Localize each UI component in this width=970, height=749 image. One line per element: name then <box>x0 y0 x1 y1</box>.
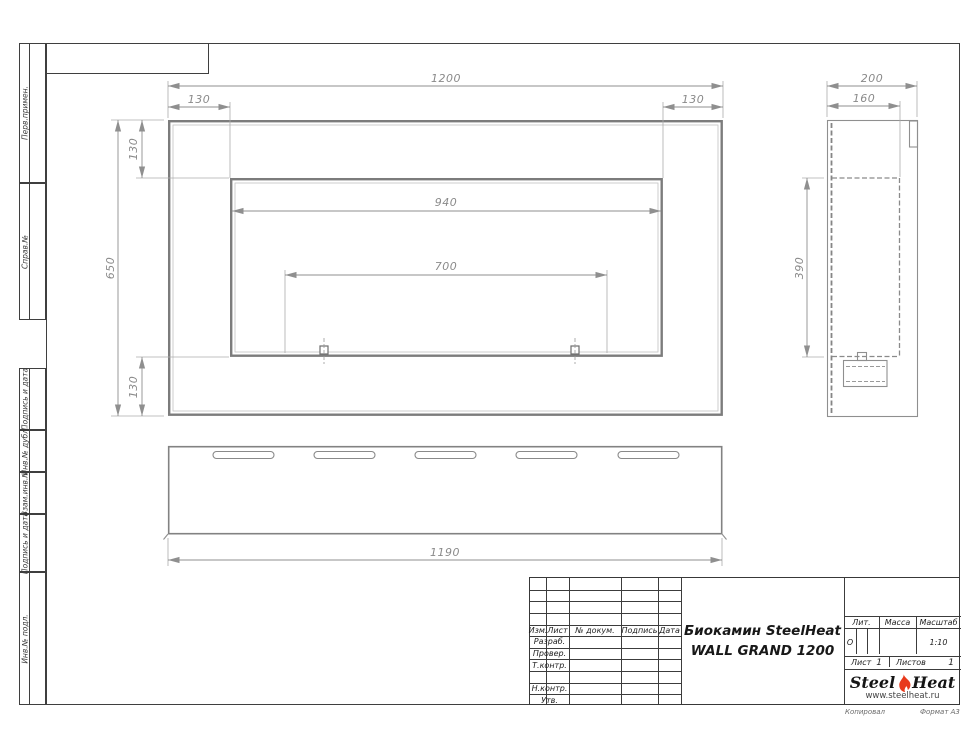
tb-sheets: Листов 1 <box>889 656 961 669</box>
logo-site: www.steelheat.ru <box>865 691 939 701</box>
tb-sheets-value: 1 <box>948 658 954 668</box>
dim-front-left-offset: 130 <box>188 93 211 106</box>
tb-line <box>658 578 659 704</box>
drawing-sheet: Перв.примен. Справ.№ Подпись и дата Инв.… <box>0 0 970 749</box>
dim-front-height: 650 <box>104 257 117 280</box>
side-view <box>828 121 918 417</box>
tb-col-doc: № докум. <box>569 625 621 637</box>
dim-front-bottom-offset: 130 <box>127 376 140 399</box>
dim-side-depth: 200 <box>861 72 884 85</box>
tb-scale-value: 1:10 <box>916 628 961 656</box>
dim-opening-width: 940 <box>435 196 458 209</box>
tb-row-razrab: Разраб. <box>530 636 569 648</box>
steelheat-logo: Steel Heat www.steelheat.ru <box>844 669 961 706</box>
tb-line <box>530 590 681 591</box>
drawing-title-line1: Биокамин SteelHeat <box>684 622 841 642</box>
tb-line <box>530 613 681 614</box>
title-block: Изм. Лист № докум. Подпись Дата Разраб. … <box>529 577 960 705</box>
tb-lit-label: Лит. <box>844 616 879 628</box>
tb-row-tkontr: Т.контр. <box>530 659 569 671</box>
dim-front-top-offset: 130 <box>127 138 140 161</box>
tb-row-prover: Провер. <box>530 648 569 660</box>
tb-sheets-label: Листов <box>896 658 926 667</box>
tb-row-utv: Утв. <box>530 694 569 706</box>
tb-scale-label: Масштаб <box>916 616 961 628</box>
drawing-title: Биокамин SteelHeat WALL GRAND 1200 <box>681 578 844 706</box>
front-dimensions: 1200 130 130 650 130 130 940 700 <box>104 72 723 416</box>
vent-slot <box>618 452 679 459</box>
logo-heat: Heat <box>912 675 955 691</box>
tb-lit-value: О <box>844 628 856 656</box>
tb-col-list: Лист <box>546 625 569 637</box>
bottom-view <box>164 447 727 540</box>
dim-side-opening-height: 390 <box>793 257 806 280</box>
tb-sheet-value: 1 <box>876 658 882 668</box>
dim-side-inner-depth: 160 <box>853 92 876 105</box>
tb-row-nkontr: Н.контр. <box>530 683 569 695</box>
copied-label: Копировал <box>845 708 885 716</box>
dim-bottom-length: 1190 <box>430 546 460 559</box>
tb-sheet: Лист 1 <box>844 656 889 669</box>
side-dimensions: 200 160 390 <box>793 72 917 357</box>
bottom-dimensions: 1190 <box>168 538 722 566</box>
tb-line <box>530 601 681 602</box>
tb-sheet-label: Лист <box>851 658 871 667</box>
dim-mount-width: 700 <box>435 260 458 273</box>
dim-front-right-offset: 130 <box>682 93 705 106</box>
tb-col-sign: Подпись <box>621 625 658 637</box>
tb-line <box>569 578 570 704</box>
drawing-title-line2: WALL GRAND 1200 <box>691 642 834 662</box>
vent-slot <box>314 452 375 459</box>
tb-line <box>856 628 857 654</box>
tb-mass-label: Масса <box>879 616 916 628</box>
vent-slot <box>415 452 476 459</box>
logo-steel: Steel <box>850 675 895 691</box>
tb-line <box>621 578 622 704</box>
burner-box <box>844 361 888 387</box>
tb-col-date: Дата <box>658 625 681 637</box>
tb-line <box>867 628 868 654</box>
tb-col-izm: Изм. <box>530 625 546 637</box>
tb-line <box>530 671 681 672</box>
vent-slot <box>213 452 274 459</box>
wall-bracket <box>910 121 918 147</box>
logo-text: Steel Heat <box>850 674 955 691</box>
dim-front-width: 1200 <box>431 72 461 85</box>
vent-slot <box>516 452 577 459</box>
format-label: Формат А3 <box>920 708 960 716</box>
